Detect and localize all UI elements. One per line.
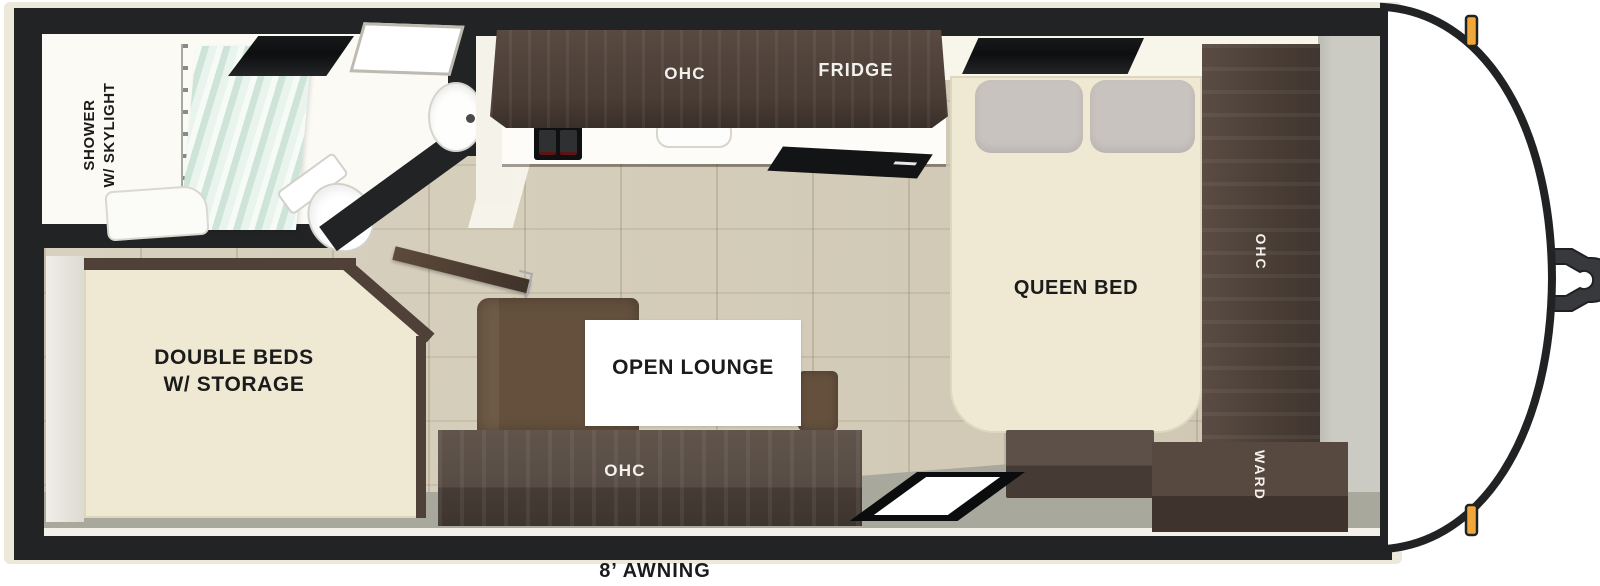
front-cap-graphic [1240,0,1600,586]
shower-pan [104,185,209,242]
shower-label-line1: SHOWER [80,55,100,215]
kitchen-ohc-label: OHC [640,64,730,84]
stove-icon [534,124,582,160]
double-beds-label: DOUBLE BEDS W/ STORAGE [84,344,384,399]
sofa-cushion-right [798,371,838,431]
bathroom-skylight-icon [349,22,464,76]
open-lounge-label: OPEN LOUNGE [585,356,801,380]
kitchen-overhead-cabinet: OHC FRIDGE [490,30,948,128]
slab-latch [893,161,917,165]
queen-bed-label: QUEEN BED [950,277,1202,300]
lounge-ohc-label: OHC [585,461,665,481]
floorplan-canvas: SHOWER W/ SKYLIGHT OHC FRIDGE QUEEN BED [0,0,1600,586]
queen-pillow-right [1090,80,1195,153]
bunk-trim-top [84,258,356,270]
double-beds-label-line2: W/ STORAGE [84,371,384,398]
bed-foot-storage [1006,430,1154,498]
bunk-trim-right [416,336,426,518]
queen-pillow-left [975,80,1083,153]
marker-light-top-icon [1466,16,1477,46]
stove-burner-left [539,130,556,152]
lounge-ohc-cabinet: OHC [438,430,862,526]
fridge-label: FRIDGE [806,60,906,81]
stove-burner-right [560,130,577,152]
front-cap-shell [1384,7,1552,549]
bunk-room-wall-white [46,256,84,522]
awning-label: 8’ AWNING [505,560,805,583]
bedroom-roof-vent-icon [962,38,1144,74]
marker-light-bottom-icon [1466,505,1477,535]
double-beds-label-line1: DOUBLE BEDS [84,344,384,371]
sink-faucet-dot [466,114,475,123]
